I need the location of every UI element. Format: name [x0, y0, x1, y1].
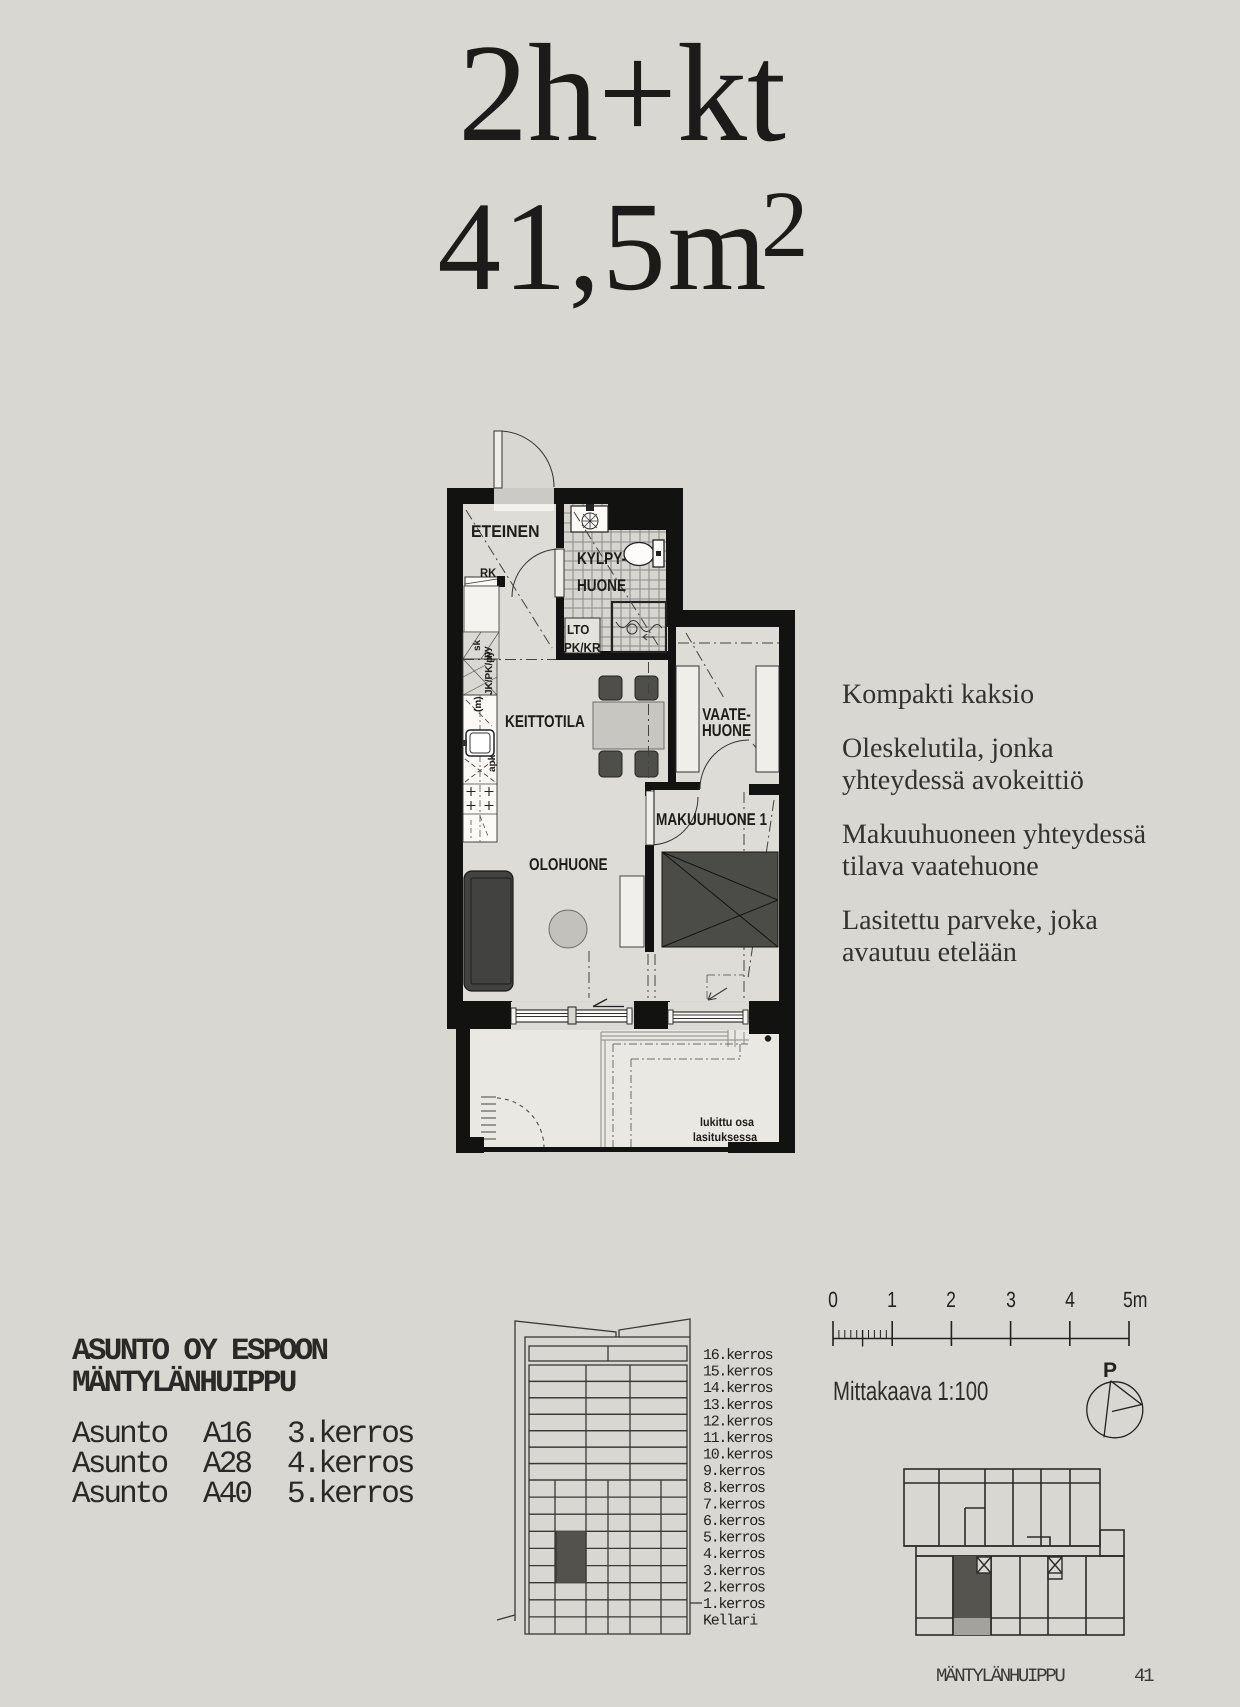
svg-text:4: 4: [1065, 1287, 1075, 1312]
svg-text:RK: RK: [480, 566, 496, 580]
svg-text:OLOHUONE: OLOHUONE: [529, 855, 608, 874]
svg-text:8.kerros: 8.kerros: [703, 1480, 765, 1497]
svg-text:3.kerros: 3.kerros: [703, 1563, 765, 1580]
svg-text:KEITTOTILA: KEITTOTILA: [505, 712, 585, 731]
svg-text:5.kerros: 5.kerros: [703, 1530, 765, 1547]
svg-text:3: 3: [1006, 1287, 1016, 1312]
svg-text:HUONE: HUONE: [577, 576, 626, 595]
svg-text:14.kerros: 14.kerros: [703, 1380, 773, 1397]
svg-text:P: P: [1103, 1359, 1117, 1382]
svg-text:1.kerros: 1.kerros: [703, 1596, 765, 1613]
svg-text:MAKUUHUONE 1: MAKUUHUONE 1: [656, 810, 767, 829]
svg-text:KYLPY-: KYLPY-: [577, 549, 626, 568]
svg-text:PK/KR: PK/KR: [564, 640, 601, 655]
svg-text:11.kerros: 11.kerros: [703, 1430, 773, 1447]
svg-text:4.kerros: 4.kerros: [703, 1546, 765, 1563]
svg-text:HUONE: HUONE: [702, 721, 751, 740]
svg-text:7.kerros: 7.kerros: [703, 1496, 765, 1513]
svg-text:0: 0: [828, 1287, 838, 1312]
svg-text:1: 1: [887, 1287, 897, 1312]
svg-text:9.kerros: 9.kerros: [703, 1463, 765, 1480]
svg-text:13.kerros: 13.kerros: [703, 1397, 773, 1414]
svg-text:lasituksessa: lasituksessa: [693, 1130, 758, 1144]
svg-text:ETEINEN: ETEINEN: [471, 522, 540, 541]
svg-text:6.kerros: 6.kerros: [703, 1513, 765, 1530]
svg-text:LTO: LTO: [567, 622, 589, 637]
svg-text:(m): (m): [473, 696, 484, 712]
svg-text:10.kerros: 10.kerros: [703, 1447, 773, 1464]
svg-text:16.kerros: 16.kerros: [703, 1347, 773, 1364]
svg-text:Kellari: Kellari: [703, 1613, 758, 1630]
svg-text:2.kerros: 2.kerros: [703, 1579, 765, 1596]
svg-text:2: 2: [946, 1287, 956, 1312]
svg-text:JK/PK/py: JK/PK/py: [484, 651, 495, 695]
svg-text:lukittu osa: lukittu osa: [700, 1115, 754, 1129]
svg-text:12.kerros: 12.kerros: [703, 1413, 773, 1430]
svg-text:5m: 5m: [1123, 1287, 1147, 1312]
svg-text:apk: apk: [487, 754, 498, 772]
svg-text:15.kerros: 15.kerros: [703, 1364, 773, 1381]
